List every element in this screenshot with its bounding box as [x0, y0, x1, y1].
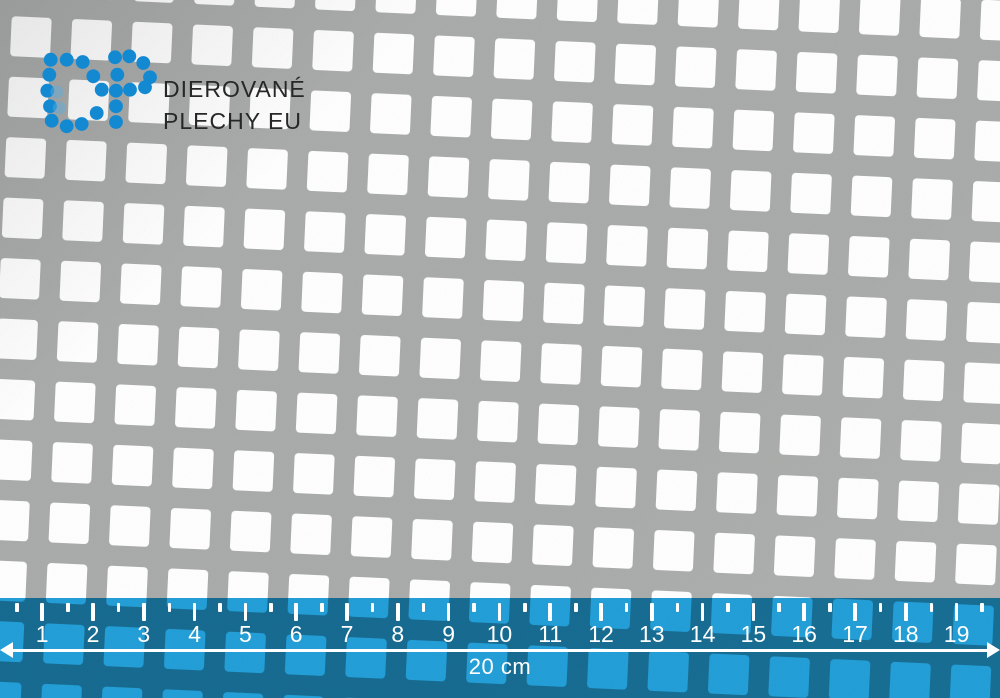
perforated-sheet-photo: DIEROVANÉ PLECHY EU 20 cm 12345678910111…	[0, 0, 1000, 698]
ruler-halftick	[828, 603, 832, 612]
ruler-halftick	[879, 603, 883, 612]
ruler-halftick	[320, 603, 324, 612]
brand-wordmark: DIEROVANÉ PLECHY EU	[163, 73, 306, 137]
ruler-halftick	[980, 603, 984, 612]
ruler-number-2: 2	[71, 623, 115, 646]
ruler-tick-12	[599, 603, 603, 621]
ruler-tick-3	[142, 603, 146, 621]
dp-logo-icon	[40, 48, 165, 140]
ruler-number-13: 13	[630, 623, 674, 646]
ruler-number-6: 6	[274, 623, 318, 646]
ruler-number-12: 12	[579, 623, 623, 646]
ruler-number-8: 8	[376, 623, 420, 646]
ruler-number-10: 10	[477, 623, 521, 646]
ruler-halftick	[523, 603, 527, 612]
ruler-tick-9	[447, 603, 451, 621]
brand-line-1: DIEROVANÉ	[163, 73, 306, 105]
ruler-halftick	[777, 603, 781, 612]
ruler-number-7: 7	[325, 623, 369, 646]
ruler-halftick	[371, 603, 375, 612]
ruler-halftick	[117, 603, 121, 612]
ruler-tick-7	[345, 603, 349, 621]
ruler-number-9: 9	[427, 623, 471, 646]
ruler-number-19: 19	[935, 623, 979, 646]
ruler-tick-1	[40, 603, 44, 621]
ruler-halftick	[15, 603, 19, 612]
ruler-tick-19	[955, 603, 959, 621]
ruler-tick-17	[853, 603, 857, 621]
ruler-ticks: 20 cm 12345678910111213141516171819	[0, 598, 1000, 698]
ruler-number-5: 5	[223, 623, 267, 646]
ruler-number-15: 15	[731, 623, 775, 646]
ruler: 20 cm 12345678910111213141516171819	[0, 598, 1000, 698]
ruler-tick-5	[244, 603, 248, 621]
dimension-line	[9, 649, 991, 652]
ruler-number-14: 14	[681, 623, 725, 646]
ruler-number-18: 18	[884, 623, 928, 646]
ruler-halftick	[218, 603, 222, 612]
ruler-tick-13	[650, 603, 654, 621]
ruler-tick-2	[91, 603, 95, 621]
ruler-tick-18	[904, 603, 908, 621]
dimension-label: 20 cm	[0, 655, 1000, 679]
ruler-number-16: 16	[782, 623, 826, 646]
ruler-halftick	[726, 603, 730, 612]
ruler-tick-16	[802, 603, 806, 621]
ruler-halftick	[422, 603, 426, 612]
ruler-halftick	[66, 603, 70, 612]
ruler-tick-4	[193, 603, 197, 621]
brand-line-2: PLECHY EU	[163, 105, 306, 137]
ruler-number-1: 1	[20, 623, 64, 646]
ruler-halftick	[625, 603, 629, 612]
ruler-number-3: 3	[122, 623, 166, 646]
ruler-tick-6	[294, 603, 298, 621]
ruler-tick-11	[548, 603, 552, 621]
ruler-halftick	[168, 603, 172, 612]
ruler-number-4: 4	[173, 623, 217, 646]
ruler-tick-15	[752, 603, 756, 621]
ruler-halftick	[574, 603, 578, 612]
ruler-halftick	[269, 603, 273, 612]
dp-logo	[40, 48, 165, 140]
ruler-halftick	[472, 603, 476, 612]
ruler-tick-8	[396, 603, 400, 621]
ruler-halftick	[930, 603, 934, 612]
ruler-halftick	[676, 603, 680, 612]
ruler-number-11: 11	[528, 623, 572, 646]
ruler-number-17: 17	[833, 623, 877, 646]
ruler-tick-14	[701, 603, 705, 621]
ruler-tick-10	[498, 603, 502, 621]
